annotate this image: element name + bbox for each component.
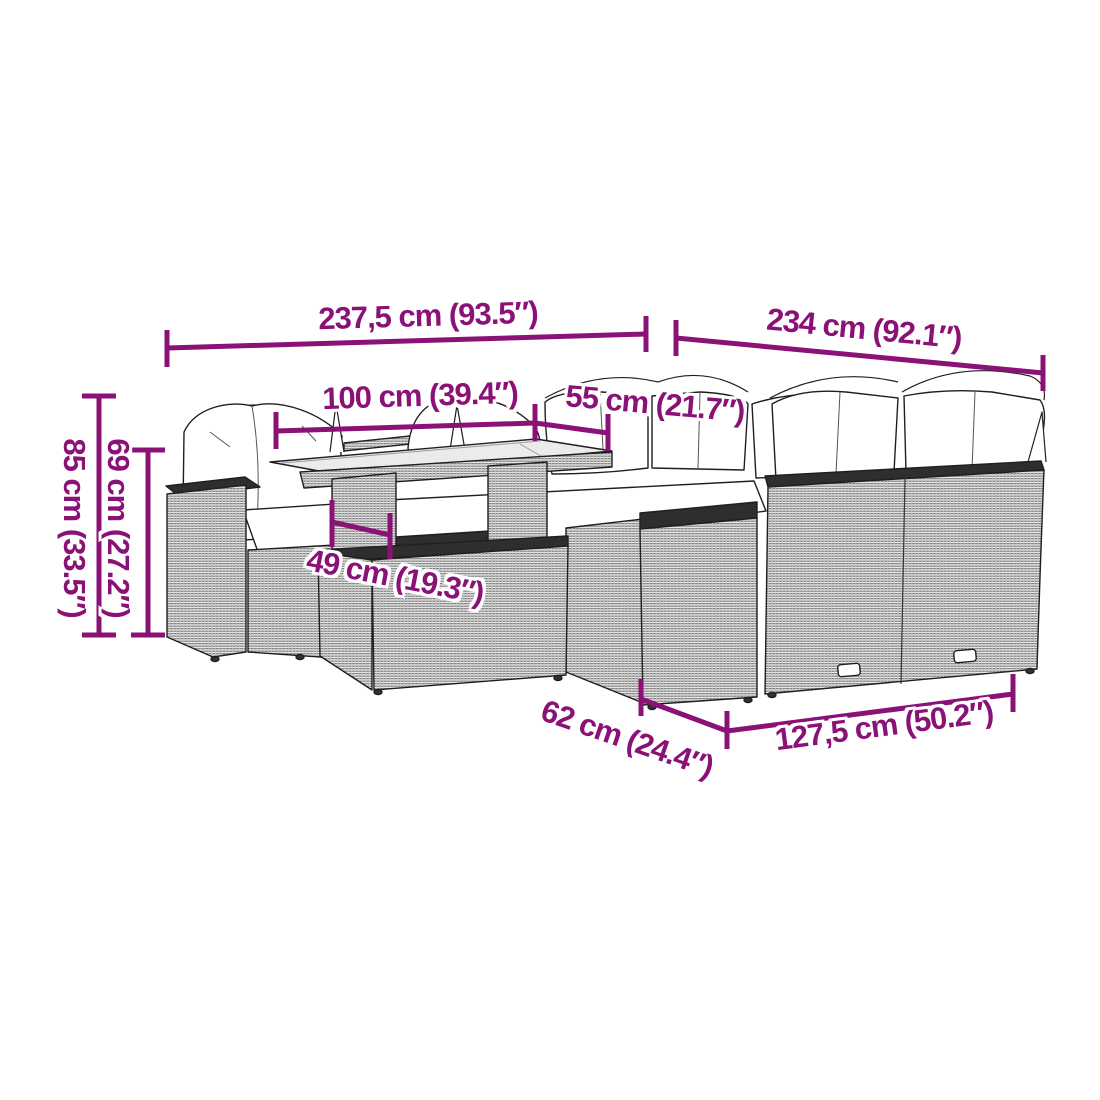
furniture-line-art [0, 0, 1100, 1100]
right-sofa-clip-2 [954, 649, 977, 663]
left-foot [211, 657, 219, 662]
middle-base [566, 519, 643, 703]
corner-foot-2 [744, 698, 752, 703]
corner-module [640, 518, 757, 705]
back-rail [344, 436, 410, 451]
right-sofa-foot-2 [1026, 669, 1034, 674]
dimension-diagram: 237,5 cm (93.5″) 234 cm (92.1″) 100 cm (… [0, 0, 1100, 1100]
ottoman-foot-2 [554, 676, 562, 681]
left-armrest [167, 485, 246, 657]
right-sofa-foot [768, 693, 776, 698]
dim-label-top-left-width: 237,5 cm (93.5″) [318, 295, 538, 337]
right-pillow-left [772, 391, 898, 480]
right-sofa-clip [838, 663, 861, 677]
dim-line-back-height [131, 450, 165, 635]
dim-label-back-height: 69 cm (27.2″) [100, 438, 136, 617]
ottoman-foot [374, 690, 382, 695]
left-foot-2 [296, 655, 304, 660]
dim-label-total-height: 85 cm (33.5″) [56, 438, 92, 617]
dim-label-table-length: 100 cm (39.4″) [322, 375, 519, 417]
